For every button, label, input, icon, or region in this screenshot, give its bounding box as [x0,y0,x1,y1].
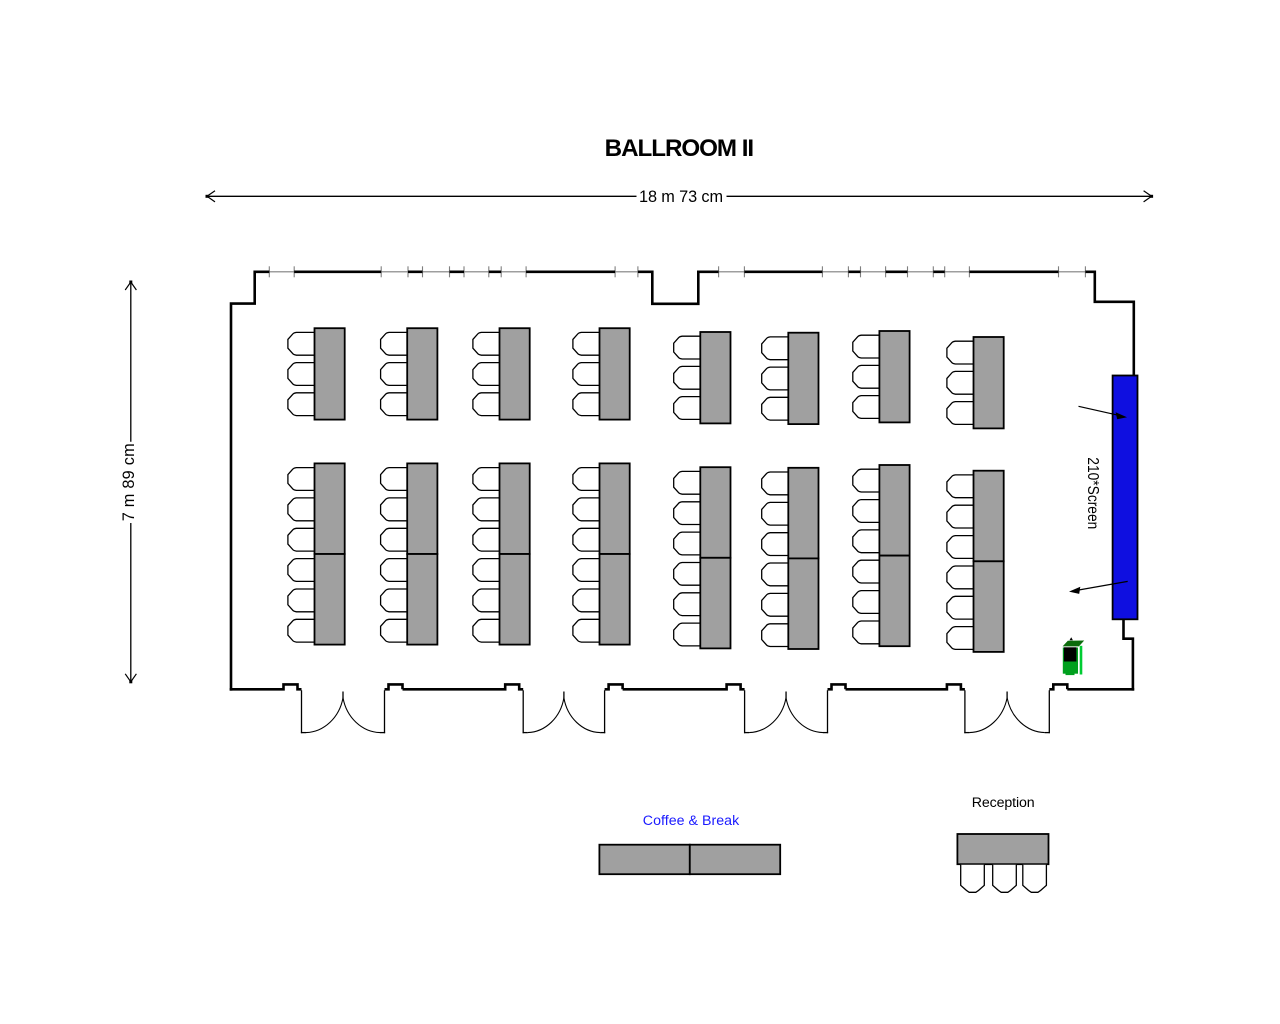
svg-text:BALLROOM II: BALLROOM II [605,135,755,162]
svg-text:Coffee & Break: Coffee & Break [643,813,740,829]
svg-text:Reception: Reception [972,795,1035,811]
svg-text:210*Screen: 210*Screen [1084,457,1101,529]
svg-text:18 m 73 cm: 18 m 73 cm [639,188,723,206]
svg-text:7 m 89 cm: 7 m 89 cm [120,443,138,521]
